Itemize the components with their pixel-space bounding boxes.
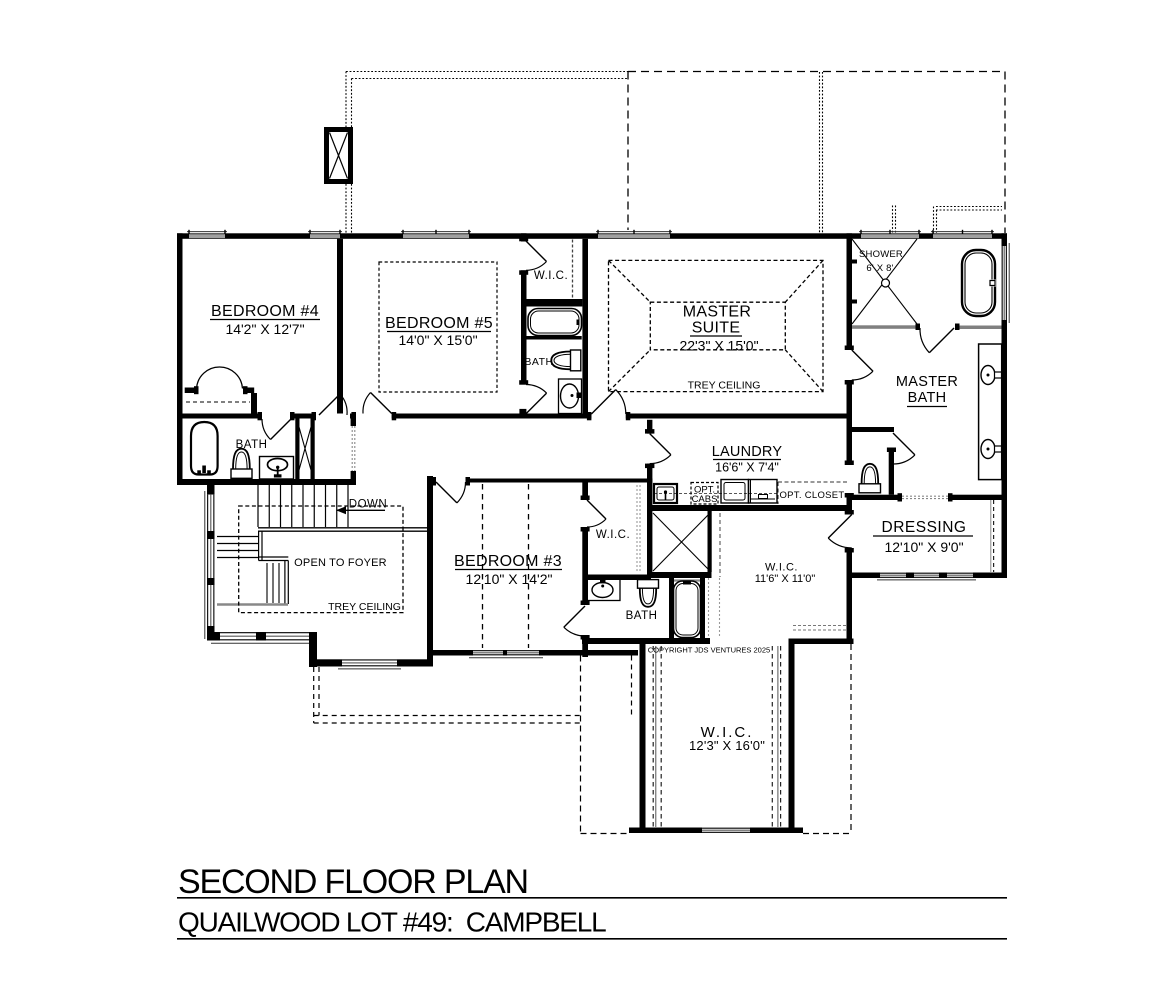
svg-text:W.I.C.: W.I.C. bbox=[534, 270, 568, 282]
svg-text:MASTER: MASTER bbox=[683, 304, 751, 321]
svg-text:BATH: BATH bbox=[524, 356, 553, 368]
svg-text:BEDROOM #3: BEDROOM #3 bbox=[454, 553, 562, 570]
svg-text:12'10" X 9'0": 12'10" X 9'0" bbox=[884, 539, 963, 555]
svg-text:COPYRIGHT JDS VENTURES 2025: COPYRIGHT JDS VENTURES 2025 bbox=[648, 646, 770, 655]
svg-text:OPT. CLOSET: OPT. CLOSET bbox=[779, 490, 844, 501]
svg-text:W.I.C.: W.I.C. bbox=[765, 562, 798, 574]
svg-text:LAUNDRY: LAUNDRY bbox=[712, 444, 783, 460]
svg-text:DOWN: DOWN bbox=[349, 499, 387, 511]
svg-text:SUITE: SUITE bbox=[692, 320, 741, 337]
svg-text:BEDROOM #5: BEDROOM #5 bbox=[385, 315, 493, 332]
svg-text:SHOWER: SHOWER bbox=[859, 249, 903, 260]
svg-text:16'6" X 7'4": 16'6" X 7'4" bbox=[715, 461, 779, 475]
svg-text:SECOND FLOOR PLAN: SECOND FLOOR PLAN bbox=[178, 863, 528, 901]
svg-text:TREY CEILING: TREY CEILING bbox=[328, 601, 401, 613]
svg-text:BATH: BATH bbox=[908, 390, 947, 406]
svg-text:12'10" X 14'2": 12'10" X 14'2" bbox=[466, 571, 553, 587]
svg-text:14'0" X 15'0": 14'0" X 15'0" bbox=[398, 332, 477, 348]
svg-text:BEDROOM #4: BEDROOM #4 bbox=[211, 303, 319, 320]
svg-text:BATH: BATH bbox=[236, 439, 268, 451]
svg-text:22'3" X 15'0": 22'3" X 15'0" bbox=[679, 338, 758, 354]
svg-text:CABS: CABS bbox=[692, 494, 718, 505]
svg-text:12'3" X 16'0": 12'3" X 16'0" bbox=[689, 738, 765, 753]
svg-text:6' X 8': 6' X 8' bbox=[866, 263, 893, 274]
svg-text:OPEN TO FOYER: OPEN TO FOYER bbox=[294, 557, 387, 569]
svg-text:W.I.C.: W.I.C. bbox=[596, 529, 630, 541]
svg-text:QUAILWOOD LOT #49: CAMPBELL: QUAILWOOD LOT #49: CAMPBELL bbox=[178, 907, 606, 938]
svg-text:BATH: BATH bbox=[626, 610, 658, 622]
svg-text:DRESSING: DRESSING bbox=[882, 519, 967, 536]
svg-text:TREY CEILING: TREY CEILING bbox=[688, 380, 761, 392]
svg-text:MASTER: MASTER bbox=[896, 374, 958, 390]
svg-text:14'2" X 12'7": 14'2" X 12'7" bbox=[225, 321, 304, 337]
svg-text:11'6" X 11'0": 11'6" X 11'0" bbox=[755, 573, 816, 585]
